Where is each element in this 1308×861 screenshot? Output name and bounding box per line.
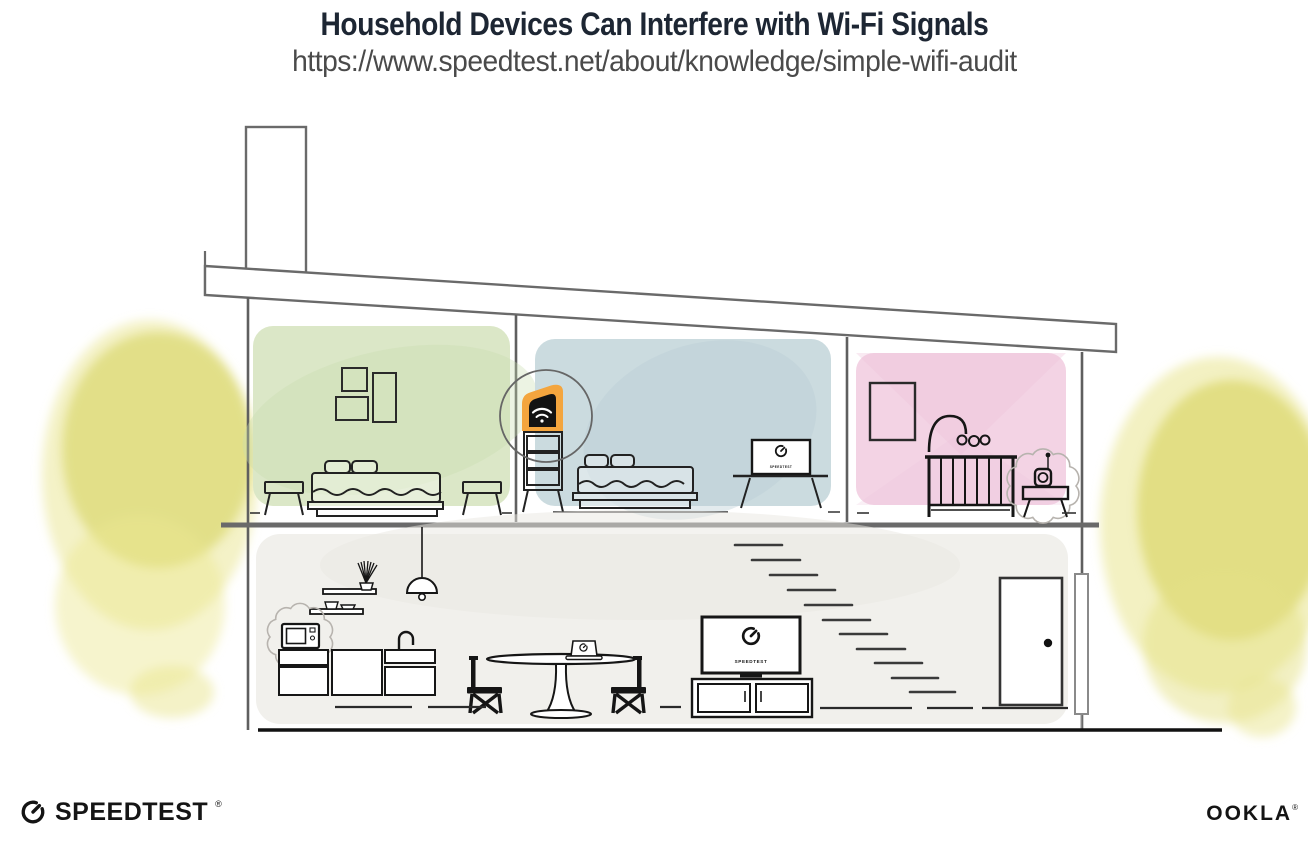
ookla-logo: OOKLA ® (1206, 802, 1298, 826)
bowl (325, 602, 338, 609)
ookla-registered-mark: ® (1292, 803, 1298, 812)
tv-console (692, 679, 812, 717)
header: Household Devices Can Interfere with Wi-… (0, 6, 1308, 79)
ookla-wordmark: OOKLA (1206, 802, 1292, 826)
chimney (246, 127, 306, 274)
room-bedroom-left (229, 320, 552, 519)
speedtest-gauge-icon (18, 797, 48, 827)
room-nursery (856, 353, 1079, 523)
living-room-tv: SPEEDTEST (702, 617, 800, 676)
speedtest-registered-mark: ® (215, 799, 222, 809)
bedroom-tv-label: SPEEDTEST (770, 465, 793, 469)
kitchen-cabinets (279, 650, 435, 695)
microwave (282, 624, 319, 648)
downspout (1075, 574, 1088, 729)
source-url: https://www.speedtest.net/about/knowledg… (292, 45, 1017, 80)
speedtest-wordmark: SPEEDTEST (55, 798, 208, 827)
bowl (341, 605, 355, 609)
doorknob (1044, 639, 1052, 647)
foliage-right (1100, 357, 1308, 737)
page-title: Household Devices Can Interfere with Wi-… (320, 6, 988, 43)
room-ground-floor: SPEEDTEST (256, 510, 1068, 724)
house-illustration: SPEEDTEST (0, 0, 1308, 861)
infographic-canvas: SPEEDTEST (0, 0, 1308, 861)
speedtest-logo: SPEEDTEST ® (18, 797, 222, 827)
foliage-left (42, 320, 258, 718)
living-tv-label: SPEEDTEST (735, 659, 768, 664)
front-door (1000, 578, 1062, 705)
